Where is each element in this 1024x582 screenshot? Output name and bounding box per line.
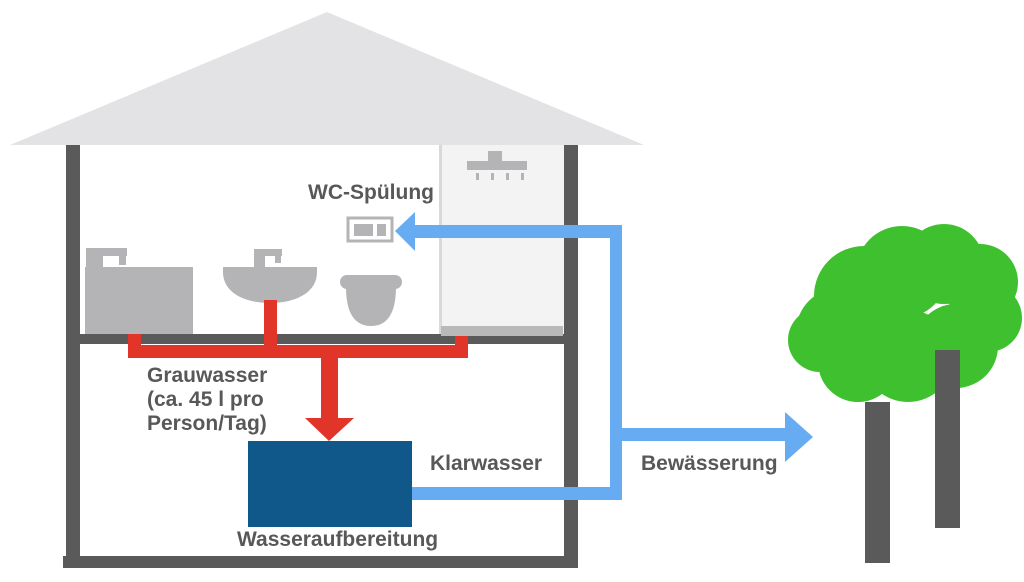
bathtub-icon	[85, 248, 193, 334]
shower-tray	[441, 326, 563, 336]
toilet-icon	[340, 275, 402, 326]
bottom-floor	[63, 556, 578, 568]
wasseraufbereitung-label: Wasseraufbereitung	[237, 528, 438, 552]
house-roof-icon	[10, 12, 644, 145]
diagram-canvas: WC-Spülung Grauwasser (ca. 45 l pro Pers…	[0, 0, 1024, 582]
tree-trunk-right	[935, 350, 960, 528]
irrigation-pipe	[622, 428, 785, 441]
grauwasser-label: Grauwasser (ca. 45 l pro Person/Tag)	[147, 364, 267, 436]
right-wall	[564, 145, 578, 567]
flush-plate-icon	[348, 218, 392, 241]
shower-partition	[439, 145, 442, 335]
sink-icon	[223, 249, 317, 303]
tree-trunk-left	[865, 402, 890, 563]
greywater-diagram	[0, 0, 1024, 582]
treatment-tank	[248, 441, 412, 527]
bewaesserung-label: Bewässerung	[641, 452, 778, 476]
shower-stall	[441, 145, 564, 335]
klarwasser-label: Klarwasser	[430, 452, 542, 476]
greywater-arrowhead-icon	[305, 418, 354, 441]
left-wall	[66, 145, 80, 567]
wc-spuelung-label: WC-Spülung	[308, 181, 434, 205]
tree-canopy-icon	[788, 224, 1022, 402]
irrigation-arrowhead-icon	[785, 412, 813, 462]
wc-feed-arrowhead-icon	[395, 212, 415, 251]
